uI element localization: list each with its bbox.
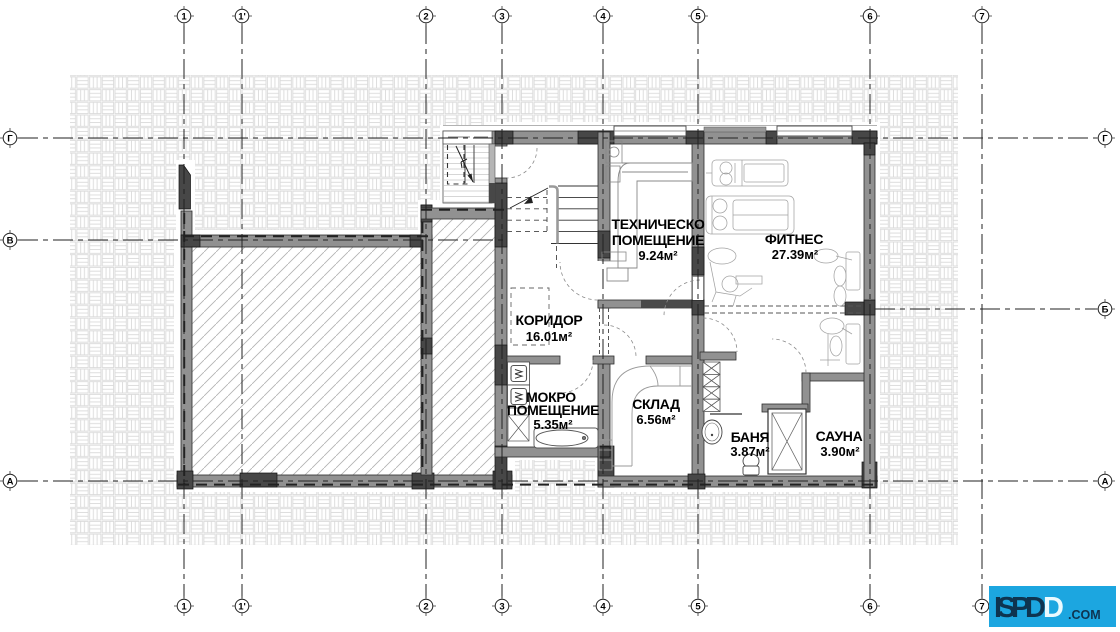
svg-text:САУНА: САУНА	[816, 428, 863, 444]
svg-text:ISPD: ISPD	[994, 592, 1046, 624]
svg-text:БАНЯ: БАНЯ	[731, 429, 770, 445]
svg-text:5: 5	[695, 601, 701, 612]
svg-text:ФИТНЕС: ФИТНЕС	[765, 231, 824, 247]
svg-text:D: D	[1043, 592, 1064, 624]
svg-text:Г: Г	[1102, 133, 1108, 144]
svg-text:1': 1'	[238, 601, 246, 612]
svg-text:4: 4	[600, 11, 606, 22]
svg-text:16.01м²: 16.01м²	[526, 329, 573, 344]
svg-text:1: 1	[181, 601, 187, 612]
svg-text:3: 3	[499, 601, 504, 612]
svg-text:В: В	[7, 235, 14, 246]
svg-text:5: 5	[695, 11, 701, 22]
svg-text:Б: Б	[1102, 304, 1109, 315]
svg-text:3.90м²: 3.90м²	[820, 444, 860, 459]
svg-text:КОРИДОР: КОРИДОР	[516, 312, 583, 328]
svg-text:ПОМЕЩЕНИЕ: ПОМЕЩЕНИЕ	[507, 402, 599, 418]
svg-text:4: 4	[600, 601, 606, 612]
svg-text:Г: Г	[7, 133, 13, 144]
svg-text:ПОМЕЩЕНИЕ: ПОМЕЩЕНИЕ	[612, 232, 704, 248]
svg-text:А: А	[7, 476, 14, 487]
svg-text:6: 6	[867, 601, 872, 612]
svg-text:ТЕХНИЧЕСКО: ТЕХНИЧЕСКО	[611, 216, 705, 232]
svg-text:1': 1'	[238, 11, 246, 22]
svg-text:3.87м²: 3.87м²	[730, 444, 770, 459]
svg-text:2: 2	[423, 601, 428, 612]
svg-text:СКЛАД: СКЛАД	[632, 396, 680, 412]
svg-text:7: 7	[979, 11, 984, 22]
svg-text:А: А	[1102, 476, 1109, 487]
svg-text:9.24м²: 9.24м²	[638, 248, 678, 263]
svg-text:6.56м²: 6.56м²	[636, 412, 676, 427]
svg-text:3: 3	[499, 11, 504, 22]
svg-text:5.35м²: 5.35м²	[533, 417, 573, 432]
svg-text:27.39м²: 27.39м²	[772, 247, 819, 262]
svg-text:.COM: .COM	[1068, 608, 1101, 622]
svg-text:2: 2	[423, 11, 428, 22]
svg-text:1: 1	[181, 11, 187, 22]
svg-text:6: 6	[867, 11, 872, 22]
svg-text:7: 7	[979, 601, 984, 612]
